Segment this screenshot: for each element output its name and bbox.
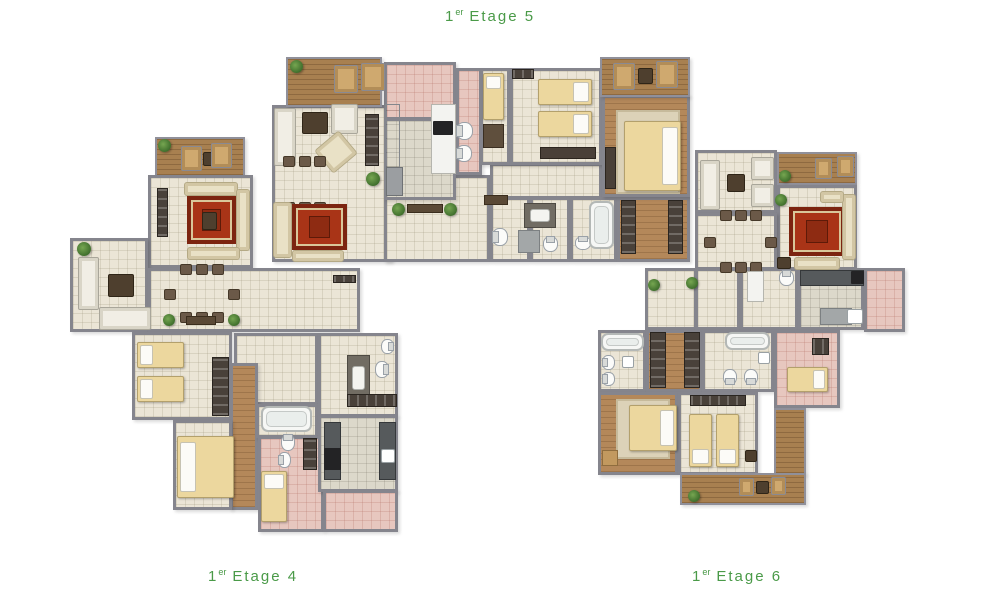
dresser xyxy=(602,450,618,466)
wardrobe xyxy=(512,69,534,79)
sofa xyxy=(78,257,99,310)
lounge-chair xyxy=(837,156,854,177)
double-bed xyxy=(629,405,677,451)
label-sup: er xyxy=(218,567,226,577)
chair xyxy=(720,262,732,273)
pillow xyxy=(660,410,674,447)
armchair xyxy=(331,104,358,134)
dining-table xyxy=(717,222,762,260)
nightstand xyxy=(745,450,757,462)
label-etage-5: 1erEtage 5 xyxy=(445,7,535,25)
sofa xyxy=(700,160,720,210)
chair xyxy=(164,289,176,300)
bathtub xyxy=(725,332,770,350)
chair xyxy=(750,210,762,221)
plant xyxy=(775,194,787,206)
stove xyxy=(433,121,453,135)
pillow xyxy=(264,474,284,489)
wardrobe xyxy=(690,395,746,406)
sofa xyxy=(99,307,151,330)
lounge-chair xyxy=(211,143,232,168)
chair xyxy=(765,237,777,248)
lounge-chair xyxy=(656,61,678,88)
label-etage-6: 1erEtage 6 xyxy=(692,567,782,585)
lounge-chair xyxy=(815,158,832,179)
floor-plans-page: 1erEtage 5 1erEtage 4 1erEtage 6 xyxy=(0,0,988,599)
console xyxy=(186,316,216,325)
chair xyxy=(212,264,224,275)
chair xyxy=(196,264,208,275)
bathtub xyxy=(601,333,644,351)
sofa xyxy=(794,257,840,270)
toilet xyxy=(375,361,389,378)
pillow xyxy=(140,345,154,365)
hall xyxy=(695,268,740,330)
armchair xyxy=(751,184,774,207)
floor-plan-etage-6 xyxy=(598,148,905,505)
toilet xyxy=(456,122,473,140)
terrace xyxy=(323,490,398,532)
console xyxy=(407,204,443,213)
sofa xyxy=(842,194,856,260)
sink xyxy=(847,309,863,324)
label-etage-4: 1erEtage 4 xyxy=(208,567,298,585)
oriental-rug xyxy=(789,207,845,256)
chair xyxy=(704,237,716,248)
single-bed xyxy=(261,471,287,522)
side-table xyxy=(108,274,134,297)
plant xyxy=(648,279,660,291)
pillow xyxy=(573,114,589,134)
shelf xyxy=(484,195,508,205)
lounge-chair xyxy=(739,478,754,496)
chair xyxy=(720,210,732,221)
chair xyxy=(180,264,192,275)
sink xyxy=(758,352,770,364)
plant xyxy=(290,60,303,73)
wardrobe xyxy=(650,332,666,388)
sofa xyxy=(184,182,238,196)
sofa xyxy=(187,247,240,260)
single-bed xyxy=(716,414,739,467)
chair xyxy=(228,289,240,300)
wardrobe xyxy=(303,438,317,470)
pillow xyxy=(719,449,737,464)
pillow xyxy=(813,370,825,389)
wardrobe xyxy=(212,357,229,416)
label-number: 1 xyxy=(445,8,455,25)
toilet xyxy=(492,228,508,246)
plant xyxy=(688,490,700,502)
stove xyxy=(324,448,341,470)
plant xyxy=(444,203,457,216)
chair xyxy=(735,262,747,273)
sofa xyxy=(820,191,844,203)
lounge-chair xyxy=(613,63,635,90)
toilet xyxy=(543,236,558,252)
sink xyxy=(381,449,395,463)
bidet xyxy=(278,452,291,468)
vanity xyxy=(747,271,764,302)
cabinet xyxy=(157,188,168,237)
plant xyxy=(77,242,91,256)
bathtub xyxy=(261,406,312,432)
label-text: Etage 6 xyxy=(716,568,782,585)
terrace-side xyxy=(774,408,806,475)
table xyxy=(638,68,653,84)
plant xyxy=(228,314,240,326)
label-text: Etage 4 xyxy=(232,568,298,585)
lounge-chair xyxy=(334,65,358,93)
stove xyxy=(851,271,864,284)
lounge-chair xyxy=(361,63,385,91)
label-number: 1 xyxy=(208,568,218,585)
bidet xyxy=(456,145,472,162)
pillow xyxy=(692,449,710,464)
sofa xyxy=(236,189,250,251)
sink xyxy=(622,356,634,368)
pillow xyxy=(573,82,589,102)
pillow xyxy=(180,442,196,492)
kitchen-balcony xyxy=(864,268,905,332)
pillow xyxy=(140,379,154,399)
shelf xyxy=(333,275,356,283)
label-sup: er xyxy=(702,567,710,577)
plant xyxy=(163,314,175,326)
corridor xyxy=(490,163,602,199)
plant xyxy=(158,139,171,152)
table xyxy=(756,481,769,494)
single-bed xyxy=(787,367,828,392)
toilet xyxy=(602,355,615,370)
single-bed xyxy=(137,342,184,368)
double-bed xyxy=(177,436,234,498)
counter xyxy=(347,394,397,407)
label-text: Etage 5 xyxy=(469,8,535,25)
single-bed xyxy=(483,73,504,120)
wardrobe xyxy=(684,332,700,388)
single-bed xyxy=(689,414,712,467)
kitchen-island xyxy=(431,104,456,174)
dresser xyxy=(812,338,829,355)
bench xyxy=(540,147,596,159)
label-sup: er xyxy=(455,7,463,17)
label-number: 1 xyxy=(692,568,702,585)
toilet xyxy=(281,434,295,451)
floor-plan-etage-4 xyxy=(68,135,398,532)
pillow xyxy=(486,76,502,90)
wood-corridor xyxy=(230,363,258,510)
dresser xyxy=(483,124,504,148)
single-bed xyxy=(538,79,592,105)
plant xyxy=(779,170,791,182)
armchair xyxy=(751,157,774,180)
plant xyxy=(686,277,698,289)
side-table xyxy=(727,174,745,192)
dining-table xyxy=(177,276,225,310)
table xyxy=(777,257,791,269)
toilet xyxy=(723,369,737,385)
single-bed xyxy=(538,111,592,137)
lounge-chair xyxy=(771,477,786,495)
double-vanity xyxy=(524,203,556,228)
single-bed xyxy=(137,376,184,402)
shower xyxy=(518,230,540,253)
bidet xyxy=(602,372,615,386)
toilet xyxy=(779,270,794,286)
chair xyxy=(735,210,747,221)
lounge-chair xyxy=(181,146,202,171)
coffee-table xyxy=(202,212,217,230)
bidet xyxy=(744,369,758,385)
side-table xyxy=(302,112,328,134)
toilet xyxy=(381,339,394,354)
